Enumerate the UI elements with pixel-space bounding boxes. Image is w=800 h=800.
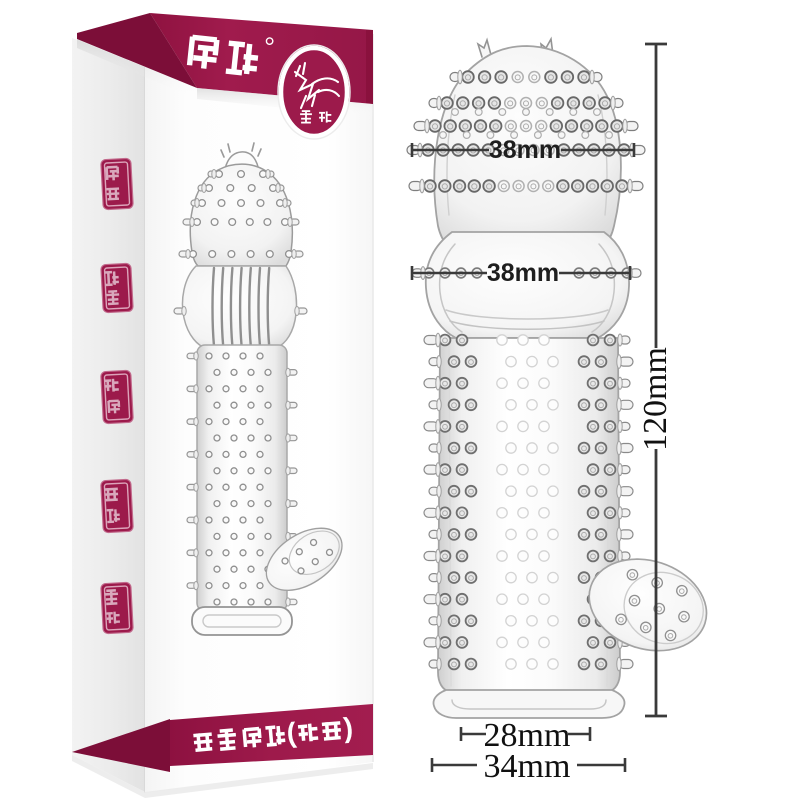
svg-text:38mm: 38mm (487, 259, 559, 287)
svg-text:38mm: 38mm (489, 136, 561, 164)
svg-text:34mm: 34mm (484, 748, 571, 785)
svg-text:120mm: 120mm (637, 347, 674, 451)
